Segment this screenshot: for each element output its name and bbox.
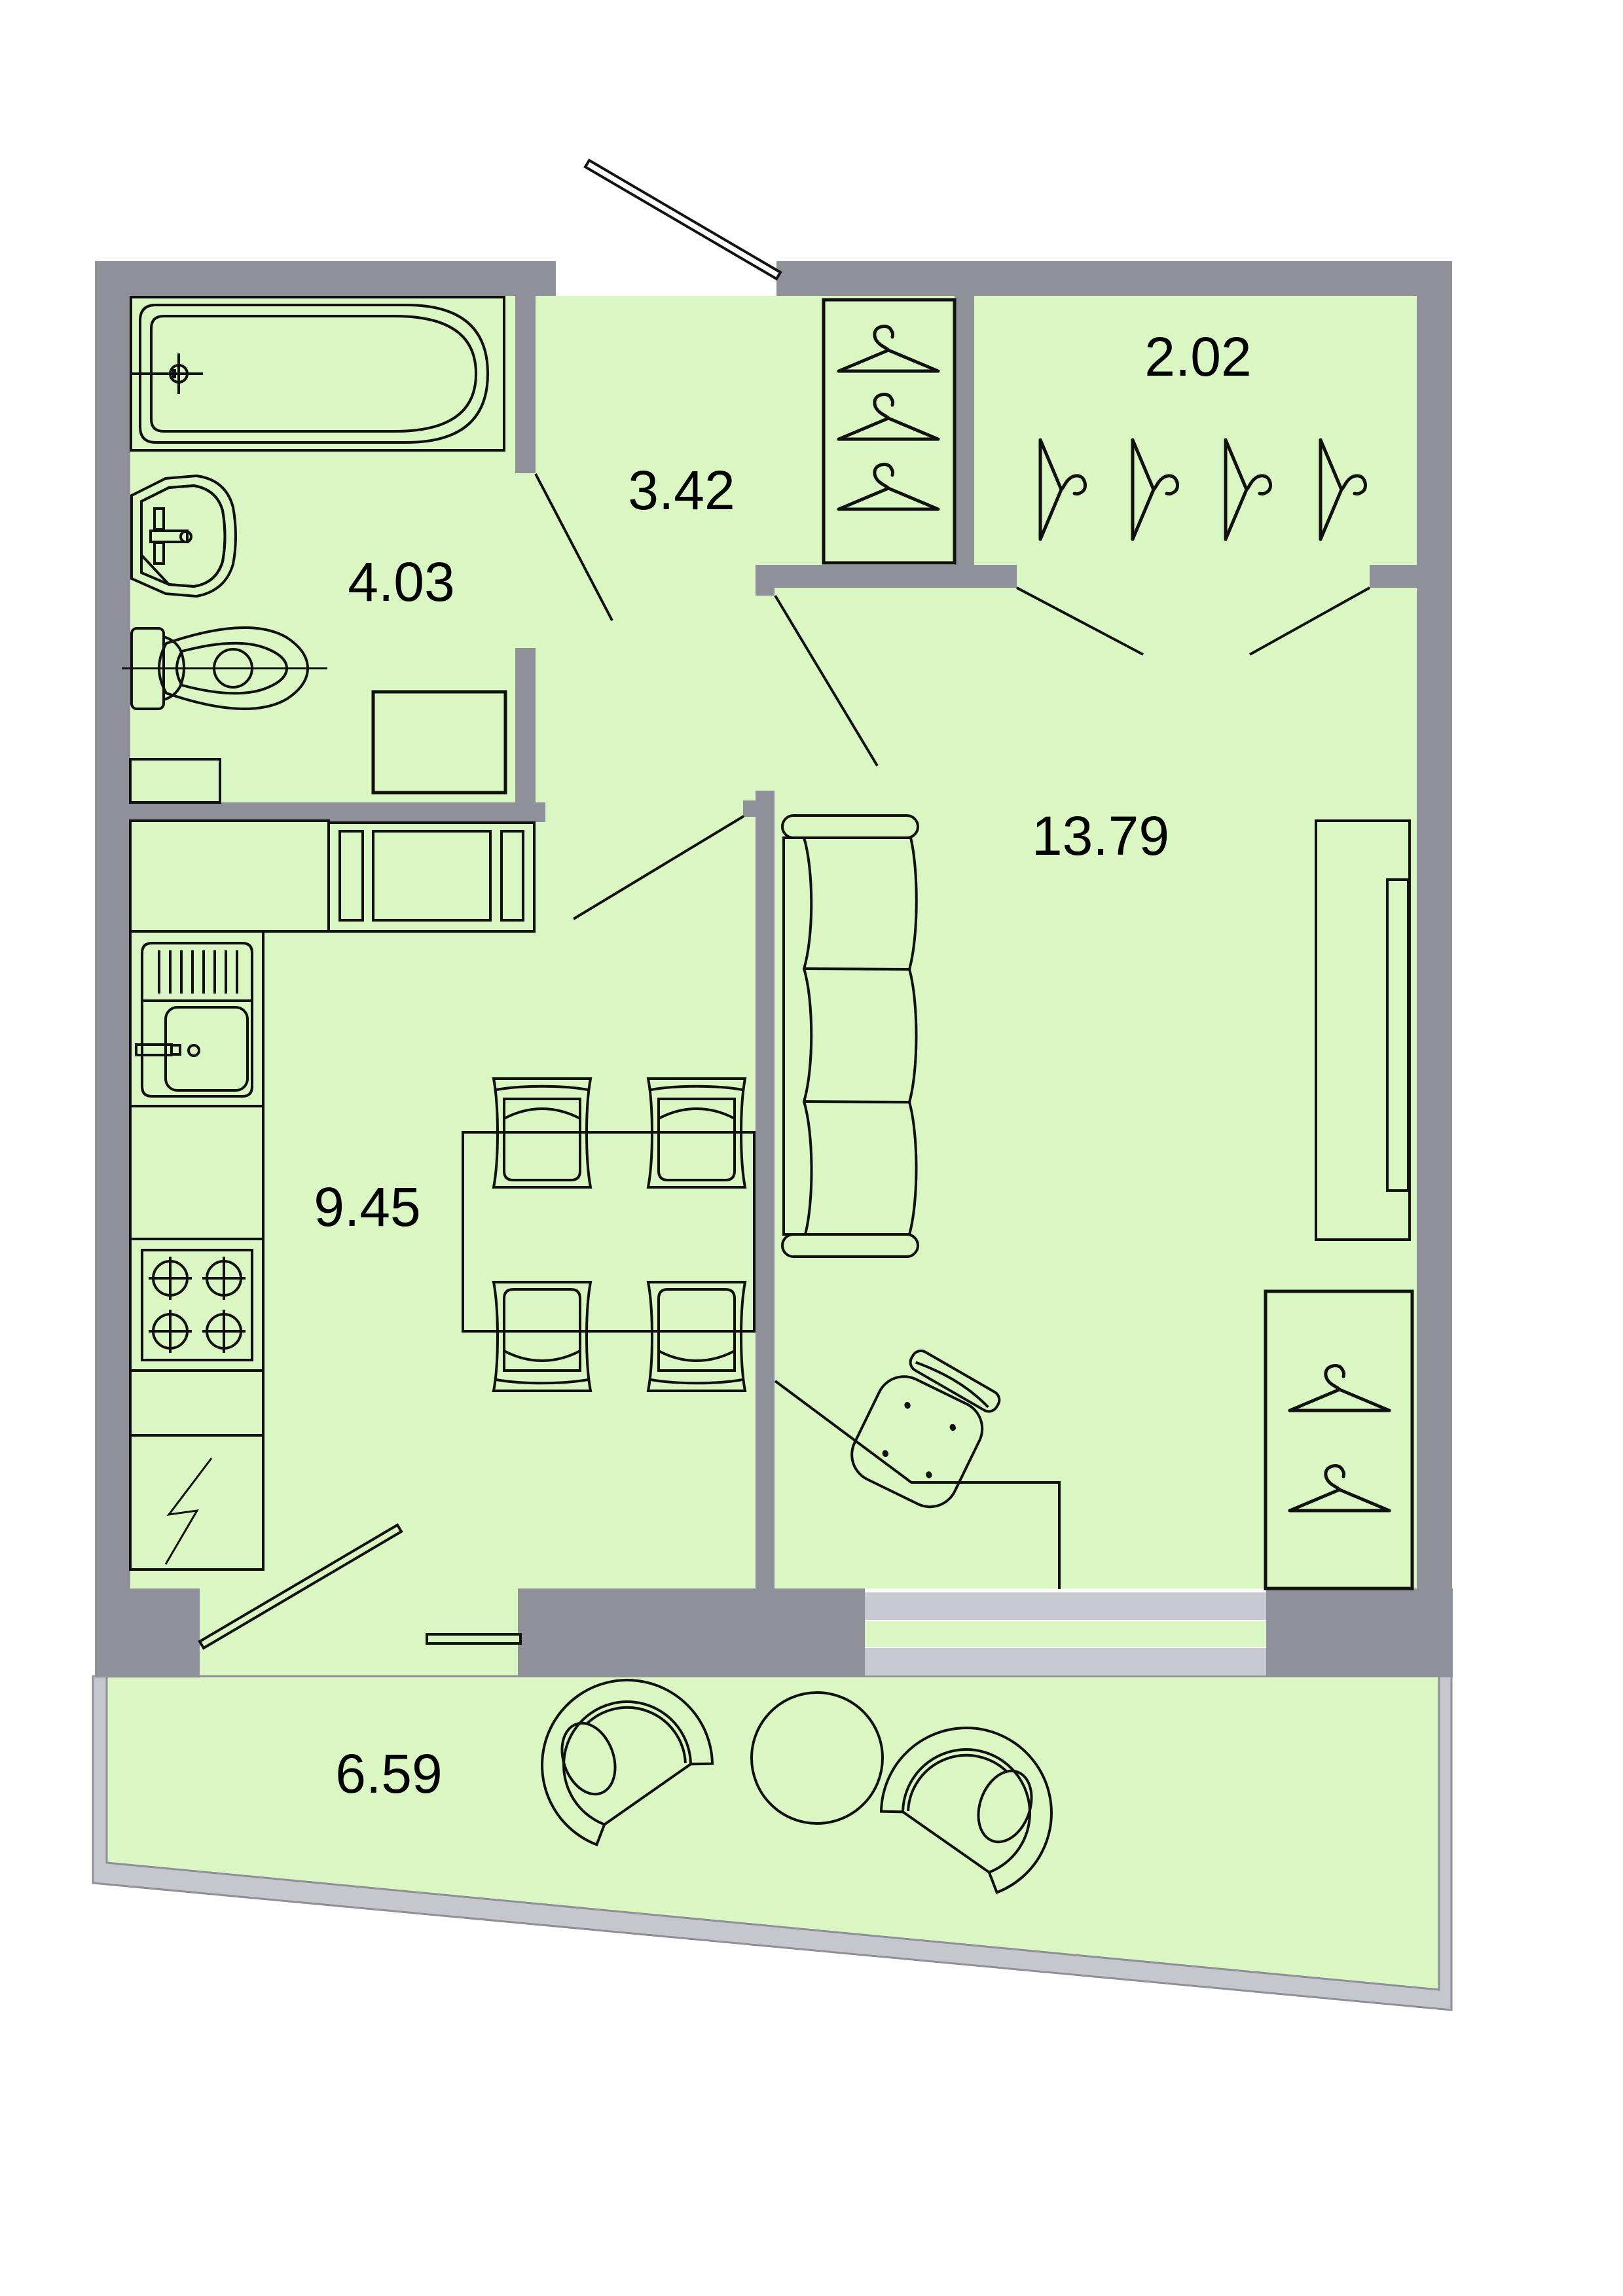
svg-text:6.59: 6.59 [335, 1743, 443, 1804]
svg-text:13.79: 13.79 [1032, 805, 1169, 867]
svg-text:3.42: 3.42 [628, 459, 735, 521]
svg-text:9.45: 9.45 [314, 1176, 421, 1238]
svg-text:4.03: 4.03 [348, 551, 455, 613]
svg-text:2.02: 2.02 [1144, 326, 1252, 387]
